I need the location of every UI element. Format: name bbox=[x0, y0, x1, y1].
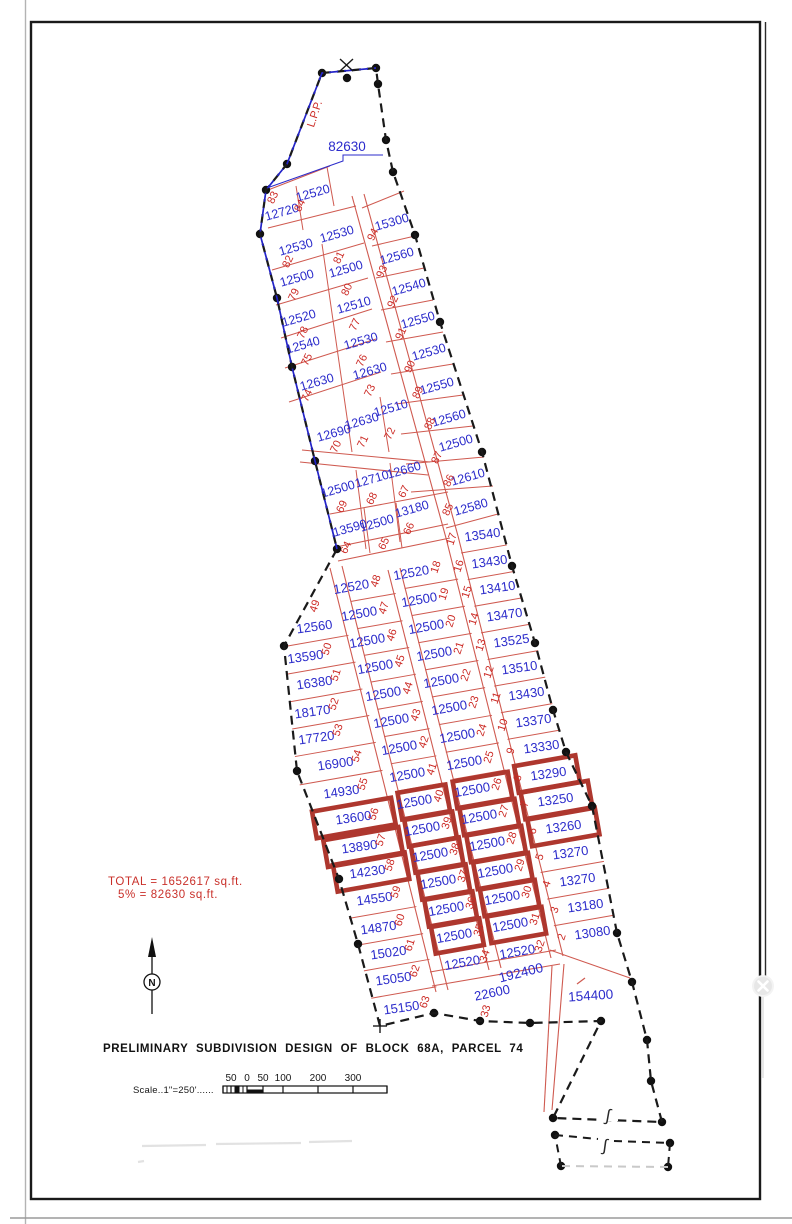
lot-number-label: 60 bbox=[393, 912, 408, 927]
total-area-text: TOTAL = 1652617 sq.ft. bbox=[108, 876, 243, 888]
scale-tick-label: 50 bbox=[225, 1073, 237, 1084]
leader-tick bbox=[577, 978, 585, 984]
lot-area-label: 12660 bbox=[385, 459, 422, 482]
lot-area-label: 14870 bbox=[359, 918, 397, 938]
lot-area-label: 13290 bbox=[529, 764, 567, 784]
lot-area-label: 12710 bbox=[353, 468, 390, 491]
lot-area-label: 12520 bbox=[443, 952, 481, 973]
lot-number-label: 28 bbox=[505, 830, 520, 845]
lot-number-label: 45 bbox=[393, 653, 408, 668]
lot-area-label: 18170 bbox=[293, 702, 331, 722]
remainder-area-label: 82630 bbox=[328, 139, 366, 154]
lot-number-label: 73 bbox=[362, 383, 378, 399]
lot-number-label: 10 bbox=[496, 717, 511, 732]
lot-area-label: 12530 bbox=[410, 341, 447, 364]
lot-number-label: 75 bbox=[299, 352, 315, 368]
lot-area-label: 12530 bbox=[277, 236, 314, 259]
lot-number-label: 59 bbox=[389, 884, 404, 899]
lot-area-label: 13330 bbox=[522, 737, 560, 757]
lot-area-label: 16900 bbox=[316, 754, 354, 774]
lot-number-label: 30 bbox=[520, 884, 535, 899]
lot-area-label: 12500 bbox=[435, 925, 473, 946]
lot-number-label: 33 bbox=[479, 1004, 494, 1019]
lot-area-label: 12520 bbox=[392, 562, 430, 583]
lot-area-label: 13510 bbox=[500, 658, 538, 678]
lot-division-line bbox=[418, 633, 471, 642]
lot-area-label: 15150 bbox=[382, 998, 420, 1018]
north-arrow: N bbox=[144, 937, 160, 1014]
lot-number-label: 21 bbox=[452, 640, 467, 655]
lot-area-label: 12510 bbox=[335, 294, 372, 317]
lot-number-label: 49 bbox=[308, 598, 323, 613]
lot-number-label: 52 bbox=[327, 696, 342, 711]
lot-number-label: 19 bbox=[437, 586, 452, 601]
lot-number-label: 54 bbox=[350, 748, 365, 763]
survey-plus-mark bbox=[373, 1019, 387, 1033]
lot-area-label: 12560 bbox=[295, 617, 333, 637]
lot-area-label: 12500 bbox=[415, 643, 453, 664]
lot-area-label: 13540 bbox=[463, 525, 501, 545]
lot-number-label: 46 bbox=[385, 627, 400, 642]
lot-area-label: 16380 bbox=[295, 673, 333, 693]
lot-area-label: 12550 bbox=[399, 309, 436, 332]
lot-number-label: 56 bbox=[367, 806, 382, 821]
lot-number-label: 61 bbox=[403, 937, 418, 952]
lot-area-label: 13250 bbox=[536, 790, 574, 810]
lot-line bbox=[391, 364, 453, 374]
lot-area-label: 12530 bbox=[342, 330, 379, 353]
lot-number-label: 3 bbox=[548, 905, 561, 915]
lot-area-label: 15050 bbox=[374, 969, 412, 989]
lot-area-label: 13270 bbox=[558, 870, 596, 890]
lot-area-label: 12520 bbox=[498, 941, 536, 962]
lot-division-line bbox=[439, 715, 492, 724]
lot-number-label: 24 bbox=[475, 722, 490, 737]
lot-number-label: 18 bbox=[429, 559, 444, 574]
lot-division-line bbox=[432, 688, 485, 697]
lot-number-label: 14 bbox=[467, 611, 482, 626]
lot-area-label: 15300 bbox=[373, 211, 410, 234]
close-button[interactable] bbox=[752, 975, 774, 997]
boundary-dot bbox=[549, 1114, 557, 1122]
lot-area-label: 12500 bbox=[364, 683, 402, 704]
lot-division-line bbox=[405, 579, 458, 588]
lot-area-label: 12580 bbox=[452, 496, 489, 519]
lot-area-label: 12500 bbox=[437, 432, 474, 455]
lot-area-label: 12520 bbox=[332, 576, 370, 597]
lot-area-label: 13370 bbox=[514, 711, 552, 731]
lot-area-label: 13525 bbox=[492, 631, 530, 651]
scale-tick-label: 0 bbox=[244, 1073, 250, 1084]
lot-area-label: 14930 bbox=[322, 782, 360, 802]
lot-division-line bbox=[425, 660, 478, 669]
drawing-title: PRELIMINARY SUBDIVISION DESIGN OF BLOCK … bbox=[103, 1043, 523, 1055]
scale-tick-label: 50 bbox=[257, 1073, 269, 1084]
lot-number-label: 57 bbox=[374, 832, 389, 847]
lot-division-line bbox=[446, 743, 499, 752]
lot-number-label: 15 bbox=[460, 584, 475, 599]
lot-number-label: 79 bbox=[286, 287, 302, 303]
lot-area-label: 12500 bbox=[278, 267, 315, 290]
lot-number-label: 77 bbox=[347, 317, 363, 333]
break-symbol-icon: ∫ bbox=[600, 1136, 610, 1156]
lot-number-label: 22 bbox=[459, 667, 474, 682]
lot-number-label: 25 bbox=[482, 749, 497, 764]
scale-text: Scale..1"=250'...... bbox=[133, 1085, 214, 1096]
lot-area-label: 13270 bbox=[551, 843, 589, 863]
lot-area-label: 12500 bbox=[348, 630, 386, 651]
lot-division-line bbox=[411, 606, 464, 615]
lot-area-label: 12500 bbox=[388, 764, 426, 785]
lot-area-label: 12500 bbox=[491, 914, 529, 935]
big-lot-area-label: 154400 bbox=[568, 986, 614, 1004]
lot-division-line bbox=[351, 594, 396, 602]
plat-sheet: 1256049135905016380511817052177205316900… bbox=[0, 0, 792, 1224]
lot-area-label: 12540 bbox=[390, 276, 427, 299]
lot-division-line bbox=[300, 770, 383, 785]
lot-area-label: 13470 bbox=[485, 605, 523, 625]
lot-number-label: 53 bbox=[331, 722, 346, 737]
lot-number-label: 44 bbox=[401, 680, 416, 695]
lot-number-label: 26 bbox=[490, 776, 505, 791]
lot-area-label: 12500 bbox=[438, 725, 476, 746]
lot-area-label: 13260 bbox=[544, 817, 582, 837]
lot-area-label: 12560 bbox=[430, 407, 467, 430]
lot-area-label: 12510 bbox=[372, 397, 409, 420]
lot-number-label: 2 bbox=[555, 932, 568, 942]
lot-area-label: 17720 bbox=[297, 728, 335, 748]
lot-number-label: 29 bbox=[513, 857, 528, 872]
lot-division-line bbox=[357, 621, 402, 629]
road-line bbox=[338, 538, 450, 561]
south-remainder-quad bbox=[555, 1135, 670, 1167]
lot-number-label: 48 bbox=[369, 573, 384, 588]
lot-area-label: 13410 bbox=[478, 578, 516, 598]
lot-area-label: 13430 bbox=[507, 684, 545, 704]
lot-area-label: 12500 bbox=[358, 512, 395, 535]
five-percent-text: 5% = 82630 sq.ft. bbox=[118, 889, 218, 901]
big-lot-area-label: 192400 bbox=[497, 960, 544, 985]
lot-number-label: 68 bbox=[364, 491, 380, 507]
north-letter: N bbox=[148, 978, 155, 989]
lot-number-label: 55 bbox=[356, 776, 371, 791]
lot-number-label: 20 bbox=[444, 613, 459, 628]
lot-number-label: 62 bbox=[408, 963, 423, 978]
lot-area-label: 15020 bbox=[369, 943, 407, 963]
road-line bbox=[552, 964, 564, 1110]
lot-number-label: 23 bbox=[467, 694, 482, 709]
lot-area-label: 13430 bbox=[470, 552, 508, 572]
lot-area-label: 13180 bbox=[566, 896, 604, 916]
lot-area-label: 12500 bbox=[422, 670, 460, 691]
lot-number-label: 71 bbox=[355, 434, 371, 450]
lot-area-label: 13590 bbox=[286, 647, 324, 667]
lot-area-label: 12500 bbox=[430, 697, 468, 718]
lot-area-label: 14550 bbox=[355, 889, 393, 909]
lot-area-label: 13080 bbox=[573, 923, 611, 943]
scale-tick-label: 300 bbox=[345, 1073, 362, 1084]
lot-number-label: 80 bbox=[339, 282, 355, 298]
lot-number-label: 51 bbox=[329, 667, 344, 682]
lot-area-label: 12500 bbox=[427, 898, 465, 919]
lot-number-label: 42 bbox=[417, 734, 432, 749]
lot-line bbox=[550, 950, 630, 978]
road-line bbox=[544, 966, 552, 1112]
lot-number-label: 43 bbox=[409, 707, 424, 722]
boundary-dot bbox=[343, 74, 351, 82]
lot-area-label: 12500 bbox=[356, 656, 394, 677]
lot-number-label: 50 bbox=[320, 641, 335, 656]
lot-area-label: 22600 bbox=[473, 982, 511, 1004]
lot-number-label: 7 bbox=[518, 799, 531, 809]
lot-number-label: 11 bbox=[489, 691, 504, 706]
lot-area-label: 12560 bbox=[378, 245, 415, 268]
lot-area-label: 12500 bbox=[419, 871, 457, 892]
lot-division-line bbox=[377, 701, 422, 709]
survey-x-mark bbox=[340, 59, 353, 71]
lot-division-line bbox=[364, 647, 409, 655]
lot-line bbox=[362, 191, 404, 208]
lot-number-label: 47 bbox=[377, 600, 392, 615]
lot-number-label: 4 bbox=[540, 879, 553, 889]
lot-area-label: 12530 bbox=[318, 223, 355, 246]
lot-number-label: 5 bbox=[533, 852, 546, 862]
scale-bar: 50050100200300 bbox=[223, 1073, 387, 1093]
lot-area-label: 12500 bbox=[372, 710, 410, 731]
lot-area-label: 12500 bbox=[340, 603, 378, 624]
lot-division-line bbox=[371, 674, 416, 682]
plat-drawing: 1256049135905016380511817052177205316900… bbox=[0, 0, 792, 1224]
sheet-border bbox=[31, 22, 760, 1199]
lot-number-label: 67 bbox=[396, 484, 412, 500]
lot-division-line bbox=[541, 861, 604, 872]
scale-tick-label: 200 bbox=[310, 1073, 327, 1084]
lot-area-label: 12500 bbox=[445, 752, 483, 773]
lot-number-label: 66 bbox=[401, 521, 417, 537]
lot-number-label: 27 bbox=[497, 803, 512, 818]
lpp-label: L.P.P. bbox=[305, 99, 325, 129]
lot-number-label: 63 bbox=[418, 994, 433, 1009]
faint-smudges bbox=[138, 1141, 352, 1162]
scale-tick-label: 100 bbox=[275, 1073, 292, 1084]
lot-number-label: 58 bbox=[383, 857, 398, 872]
lot-area-label: 13890 bbox=[340, 837, 378, 857]
lot-number-label: 12 bbox=[482, 664, 497, 679]
lot-division-line bbox=[286, 635, 348, 646]
